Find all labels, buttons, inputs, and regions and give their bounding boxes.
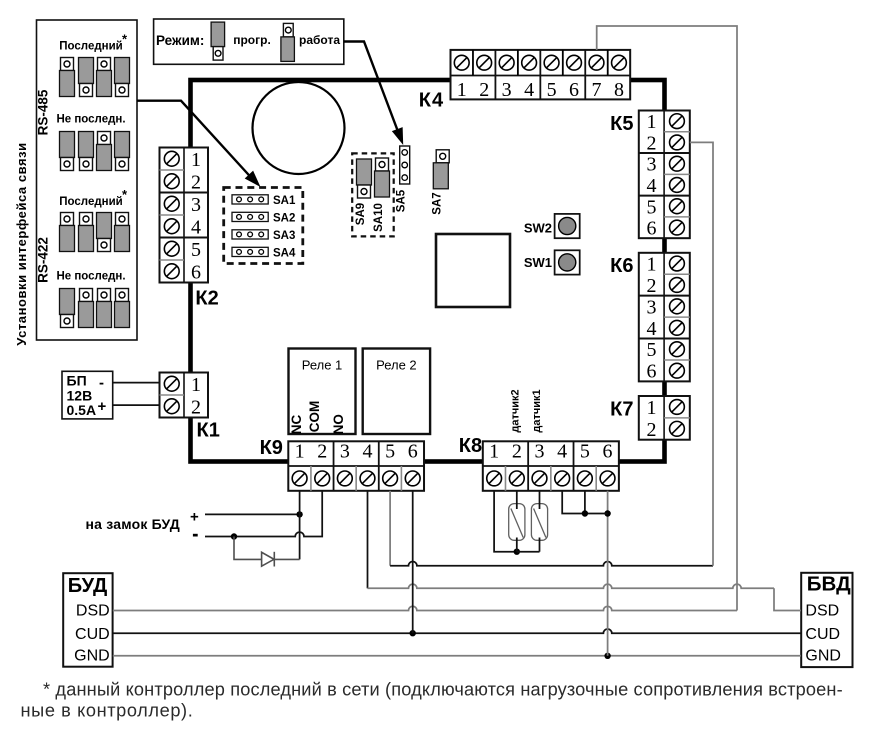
svg-text:+: + [98,398,107,415]
svg-text:5: 5 [646,339,656,361]
svg-text:1: 1 [191,374,201,396]
svg-text:GND: GND [74,648,110,665]
svg-text:SA2: SA2 [273,212,295,224]
svg-text:БУД: БУД [68,575,108,597]
svg-text:2: 2 [646,275,656,297]
svg-text:3: 3 [191,194,201,216]
svg-text:Реле 1: Реле 1 [302,358,343,373]
svg-text:К4: К4 [419,90,444,112]
svg-text:6: 6 [646,361,656,383]
svg-text:БП: БП [67,373,87,389]
svg-text:1: 1 [646,397,656,419]
svg-text:5: 5 [580,440,590,462]
svg-text:4: 4 [362,440,372,462]
svg-text:1: 1 [295,440,305,462]
svg-text:2: 2 [646,419,656,441]
svg-text:Установки интерфейса связи: Установки интерфейса связи [14,142,29,345]
svg-text:2: 2 [512,440,522,462]
svg-text:ные в контроллер).: ные в контроллер). [21,700,194,720]
svg-text:CUD: CUD [805,626,840,643]
svg-text:RS-422: RS-422 [36,237,51,283]
svg-text:Режим:: Режим: [156,33,204,48]
svg-text:1: 1 [191,149,201,171]
svg-text:NO: NO [331,414,346,434]
svg-text:8: 8 [614,79,624,101]
svg-text:2: 2 [317,440,327,462]
svg-text:SA7: SA7 [432,192,444,214]
svg-text:Не последн.: Не последн. [56,271,125,283]
svg-text:SA5: SA5 [396,189,408,212]
svg-text:датчик1: датчик1 [531,389,543,432]
svg-text:GND: GND [805,648,841,665]
svg-text:К7: К7 [610,399,633,421]
svg-text:4: 4 [524,79,534,101]
svg-text:3: 3 [646,154,656,176]
svg-text:1: 1 [646,111,656,133]
svg-text:прогр.: прогр. [233,33,271,47]
svg-text:SA3: SA3 [273,230,295,242]
svg-text:SA10: SA10 [373,203,385,232]
svg-text:6: 6 [646,218,656,240]
svg-text:DSD: DSD [805,602,839,619]
svg-text:4: 4 [646,318,656,340]
svg-text:К2: К2 [195,287,218,309]
svg-text:+: + [190,508,199,525]
svg-text:2: 2 [646,132,656,154]
svg-text:COM: COM [307,401,322,433]
svg-text:2: 2 [191,171,201,193]
svg-text:SA4: SA4 [273,247,296,259]
svg-text:-: - [99,375,104,392]
svg-text:0.5А: 0.5А [67,402,97,418]
svg-text:3: 3 [340,440,350,462]
svg-text:6: 6 [191,261,201,283]
svg-text:5: 5 [385,440,395,462]
svg-text:на замок БУД: на замок БУД [86,516,180,532]
svg-text:3: 3 [535,440,545,462]
svg-text:К6: К6 [610,255,633,277]
svg-text:6: 6 [603,440,613,462]
svg-text:4: 4 [191,216,201,238]
svg-text:RS-485: RS-485 [36,89,51,135]
svg-text:датчик2: датчик2 [509,389,521,432]
svg-text:Последний: Последний [59,41,122,53]
svg-text:К5: К5 [610,113,633,135]
svg-text:1: 1 [457,79,467,101]
svg-text:7: 7 [591,79,601,101]
svg-text:5: 5 [191,239,201,261]
svg-text:4: 4 [557,440,567,462]
svg-text:К8: К8 [459,435,482,457]
svg-text:К9: К9 [260,437,283,459]
svg-text:3: 3 [646,296,656,318]
svg-text:DSD: DSD [76,602,110,619]
svg-text:SA9: SA9 [355,203,367,225]
svg-text:К1: К1 [197,420,220,442]
svg-text:1: 1 [489,440,499,462]
svg-text:6: 6 [408,440,418,462]
svg-text:CUD: CUD [75,626,110,643]
svg-text:Реле 2: Реле 2 [376,358,417,373]
svg-text:2: 2 [479,79,489,101]
svg-text:БВД: БВД [807,573,851,596]
svg-text:4: 4 [646,175,656,197]
svg-text:NC: NC [289,415,304,435]
svg-text:Последний: Последний [59,196,122,208]
svg-text:* данный контроллер последний: * данный контроллер последний в сети (по… [43,680,843,700]
svg-text:SW2: SW2 [524,221,552,236]
svg-text:6: 6 [569,79,579,101]
svg-text:SW1: SW1 [524,255,552,270]
svg-text:SA1: SA1 [273,195,296,207]
svg-text:5: 5 [547,79,557,101]
svg-text:2: 2 [191,396,201,418]
svg-text:Не последн.: Не последн. [56,114,125,126]
svg-text:работа: работа [299,33,340,47]
svg-text:1: 1 [646,254,656,276]
svg-text:3: 3 [502,79,512,101]
svg-text:5: 5 [646,196,656,218]
